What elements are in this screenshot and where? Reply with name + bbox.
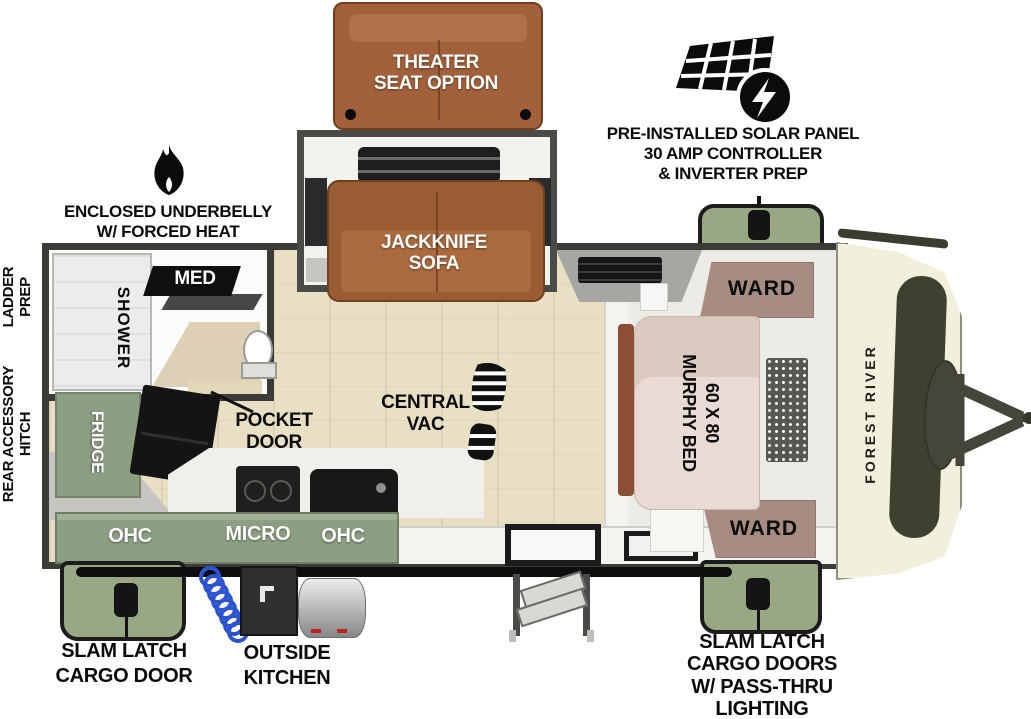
flame-icon: [146, 144, 192, 202]
latch-stem: [757, 610, 760, 630]
forest-river-logo: FOREST RIVER: [862, 274, 882, 554]
micro-label: MICRO: [218, 523, 298, 545]
slam-latch: [748, 210, 770, 240]
ward-top-label: WARD: [712, 277, 812, 301]
runner-rug: [766, 358, 808, 462]
solar-callout: PRE-INSTALLED SOLAR PANEL 30 AMP CONTROL…: [595, 124, 871, 184]
step-rail: [513, 574, 520, 636]
ohc-right-label: OHC: [308, 525, 378, 547]
cooktop: [236, 466, 300, 516]
griddle-knob: [337, 629, 347, 633]
frame-rail: [76, 567, 732, 577]
latch-stem: [757, 196, 761, 206]
outside-kitchen-callout: OUTSIDE KITCHEN: [217, 641, 357, 691]
underbelly-callout: ENCLOSED UNDERBELLY W/ FORCED HEAT: [32, 202, 304, 242]
outside-kitchen-unit: [240, 566, 298, 636]
toilet-tank: [241, 362, 277, 379]
latch-stem: [125, 617, 128, 639]
slam-latch-left-callout: SLAM LATCH CARGO DOOR: [38, 639, 210, 689]
vent: [578, 257, 662, 283]
griddle-knob: [311, 629, 321, 633]
recliner-foot: [520, 109, 531, 120]
slam-latch-right-callout: SLAM LATCH CARGO DOORS W/ PASS-THRU LIGH…: [672, 631, 852, 719]
shower-pan: [52, 253, 152, 391]
outside-faucet-stem: [260, 586, 265, 602]
ohc-left-label: OHC: [95, 525, 165, 547]
faucet: [376, 483, 386, 493]
jackknife-sofa-label: JACKKNIFE SOFA: [339, 232, 529, 275]
slam-latch: [746, 578, 770, 610]
shower-label: SHOWER: [111, 253, 133, 403]
recliner-foot: [345, 109, 356, 120]
slam-latch: [114, 583, 138, 617]
entry-steps: [505, 572, 601, 648]
slideout-window: [358, 147, 500, 183]
rear-accessory-hitch-callout: REAR ACCESSORY HITCH: [0, 344, 38, 524]
slideout-window-left: [305, 178, 327, 246]
pocket-door-label: POCKET DOOR: [214, 410, 334, 454]
solar-panel-icon: [668, 30, 803, 130]
burner: [244, 480, 266, 502]
bed-headboard: [618, 324, 634, 496]
med-cabinet-shadow: [161, 294, 262, 310]
step-foot: [509, 630, 516, 642]
theater-seat-back: [349, 14, 527, 42]
rv-floorplan-diagram: MED SHOWER FRIDGE OHC MICRO OHC POCKET D…: [0, 0, 1031, 719]
central-vac-label: CENTRAL VAC: [378, 392, 473, 436]
murphy-bed-label: 60 X 80 MURPHY BED: [677, 313, 723, 513]
fridge-label: FRIDGE: [87, 393, 107, 491]
kitchen-sink: [310, 469, 398, 518]
entry-door: [505, 524, 601, 566]
ladder-prep-callout: LADDER PREP: [0, 261, 38, 333]
nightstand: [640, 283, 668, 311]
step-foot: [587, 630, 594, 642]
a-frame-hitch: [944, 372, 1031, 468]
theater-seat-label: THEATER SEAT OPTION: [341, 52, 531, 95]
burner: [270, 480, 292, 502]
griddle: [298, 578, 366, 638]
ward-bottom-label: WARD: [714, 517, 814, 541]
med-label: MED: [160, 268, 230, 289]
